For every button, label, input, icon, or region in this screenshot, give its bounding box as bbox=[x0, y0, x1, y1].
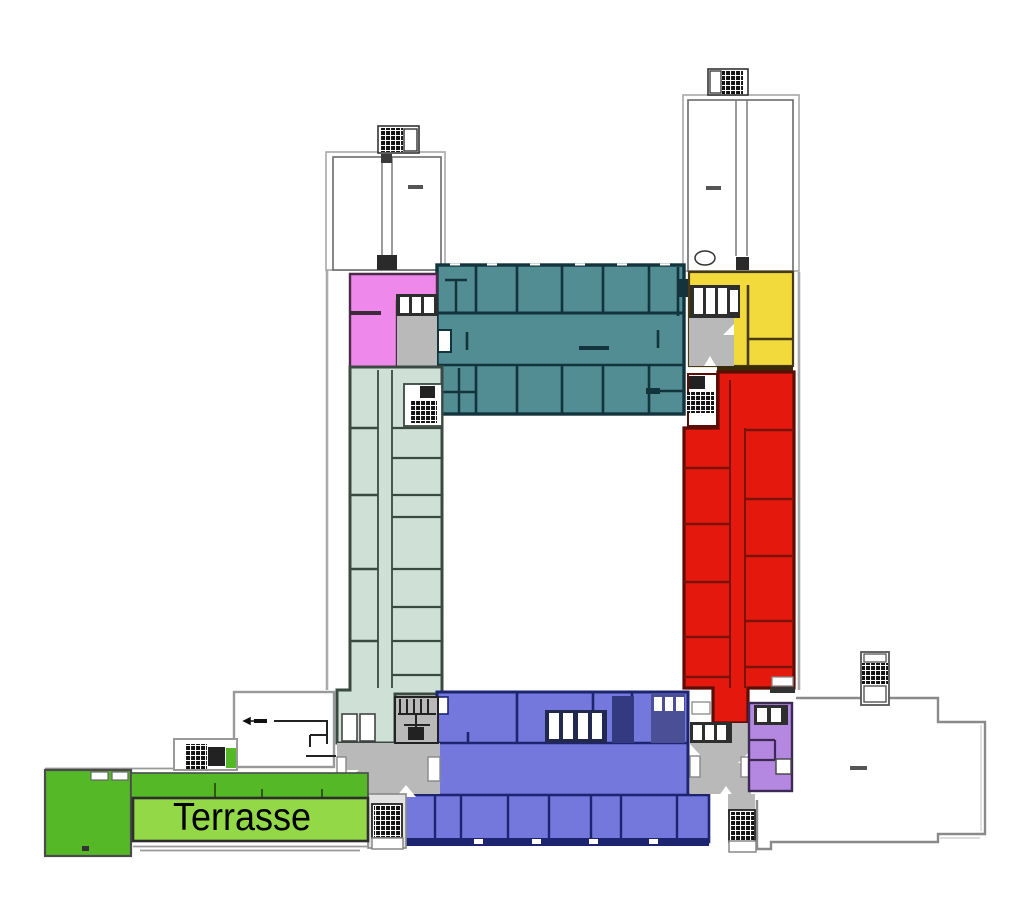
svg-text:Terrasse: Terrasse bbox=[173, 796, 311, 839]
